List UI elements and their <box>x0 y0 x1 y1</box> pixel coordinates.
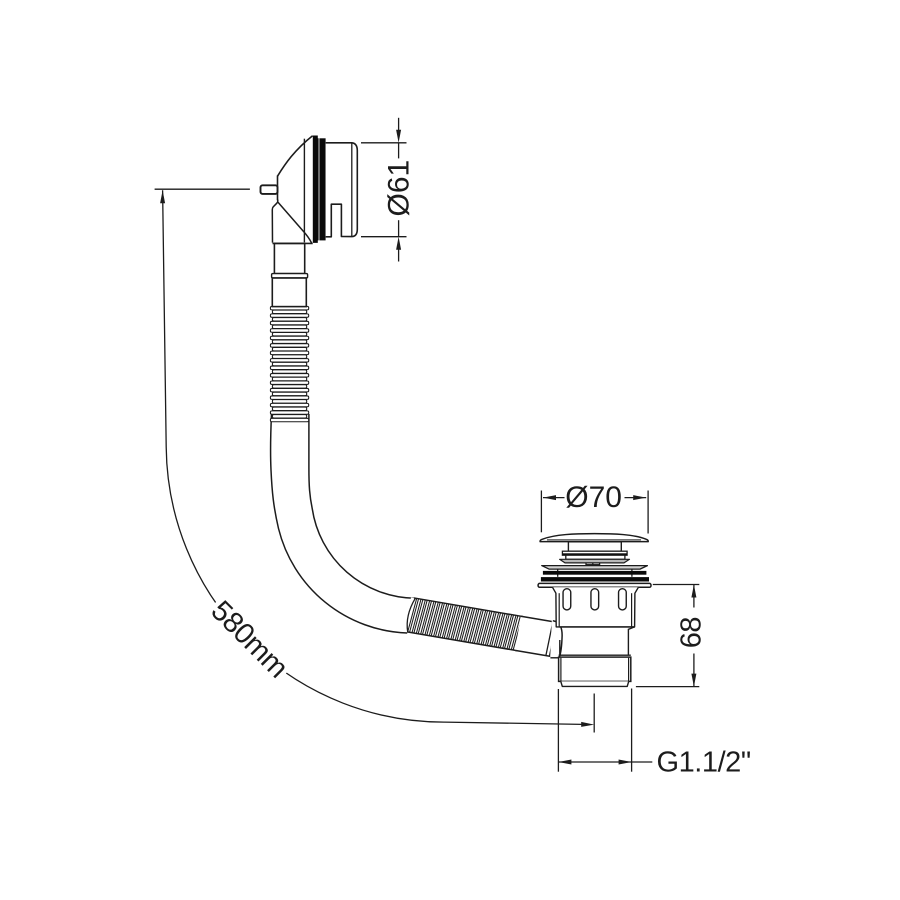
svg-text:68: 68 <box>676 617 708 648</box>
svg-text:G1.1/2": G1.1/2" <box>657 747 751 779</box>
svg-text:Ø70: Ø70 <box>565 481 622 514</box>
svg-text:Ø61: Ø61 <box>383 160 416 217</box>
